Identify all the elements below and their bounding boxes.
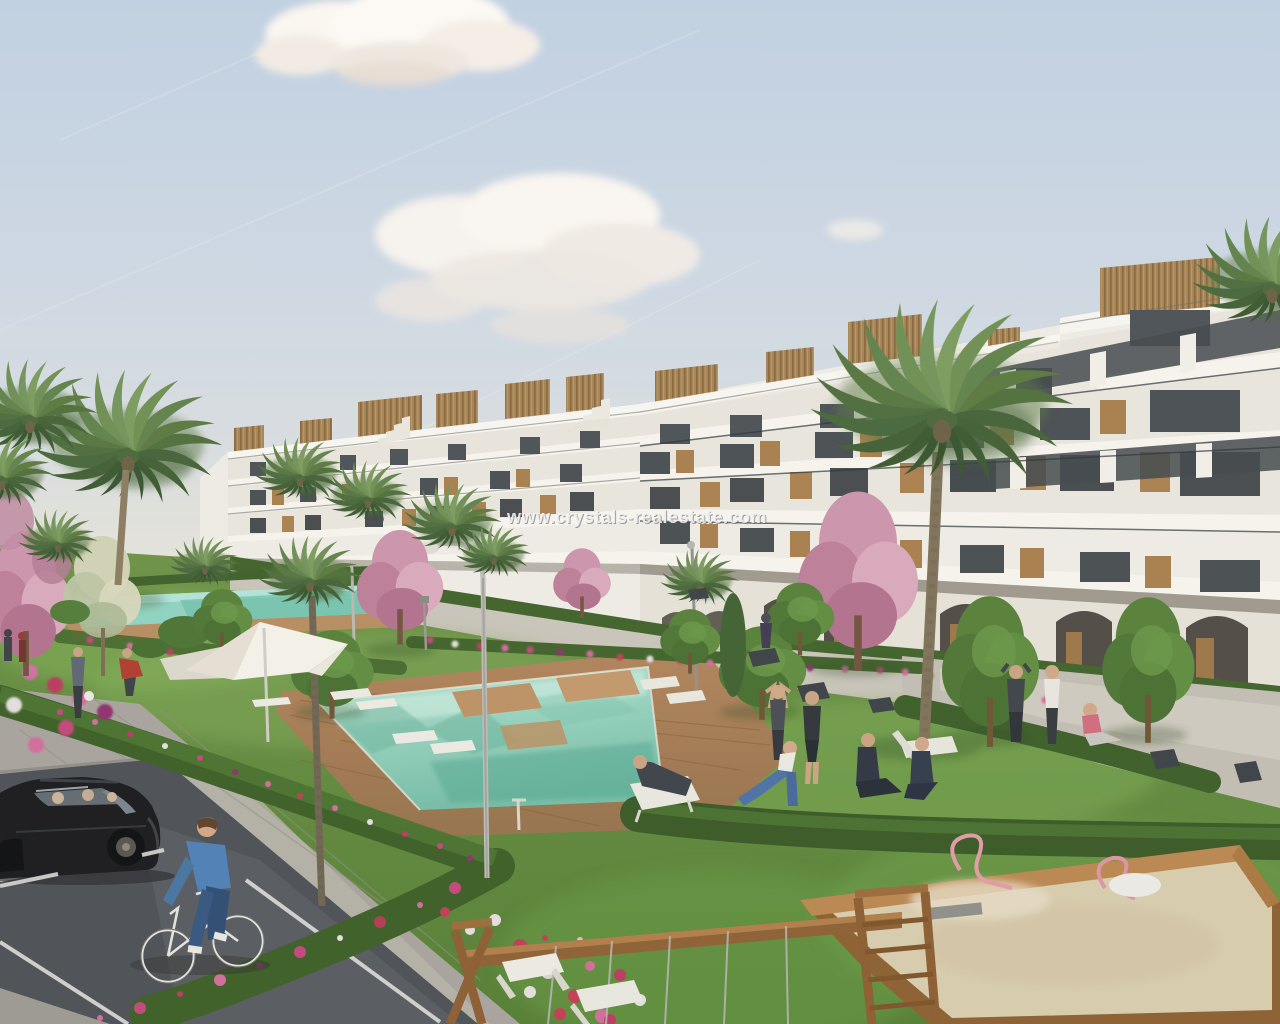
- svg-text:www.crystals-realestate.com: www.crystals-realestate.com: [506, 507, 767, 527]
